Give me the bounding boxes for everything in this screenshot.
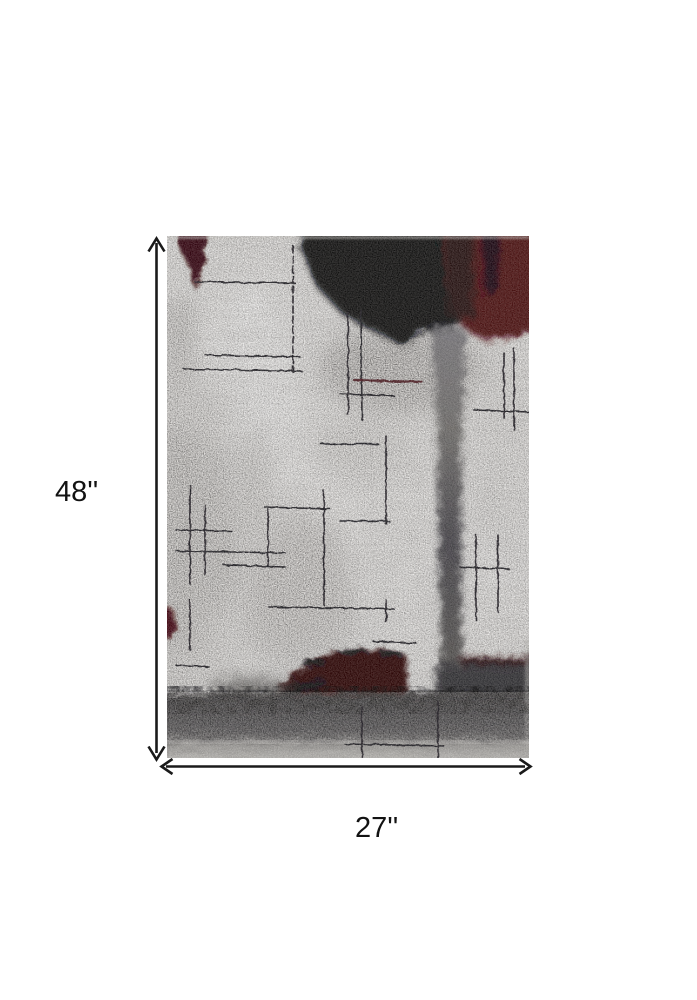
svg-text:48'': 48'' bbox=[55, 476, 98, 508]
svg-text:27'': 27'' bbox=[355, 812, 398, 844]
